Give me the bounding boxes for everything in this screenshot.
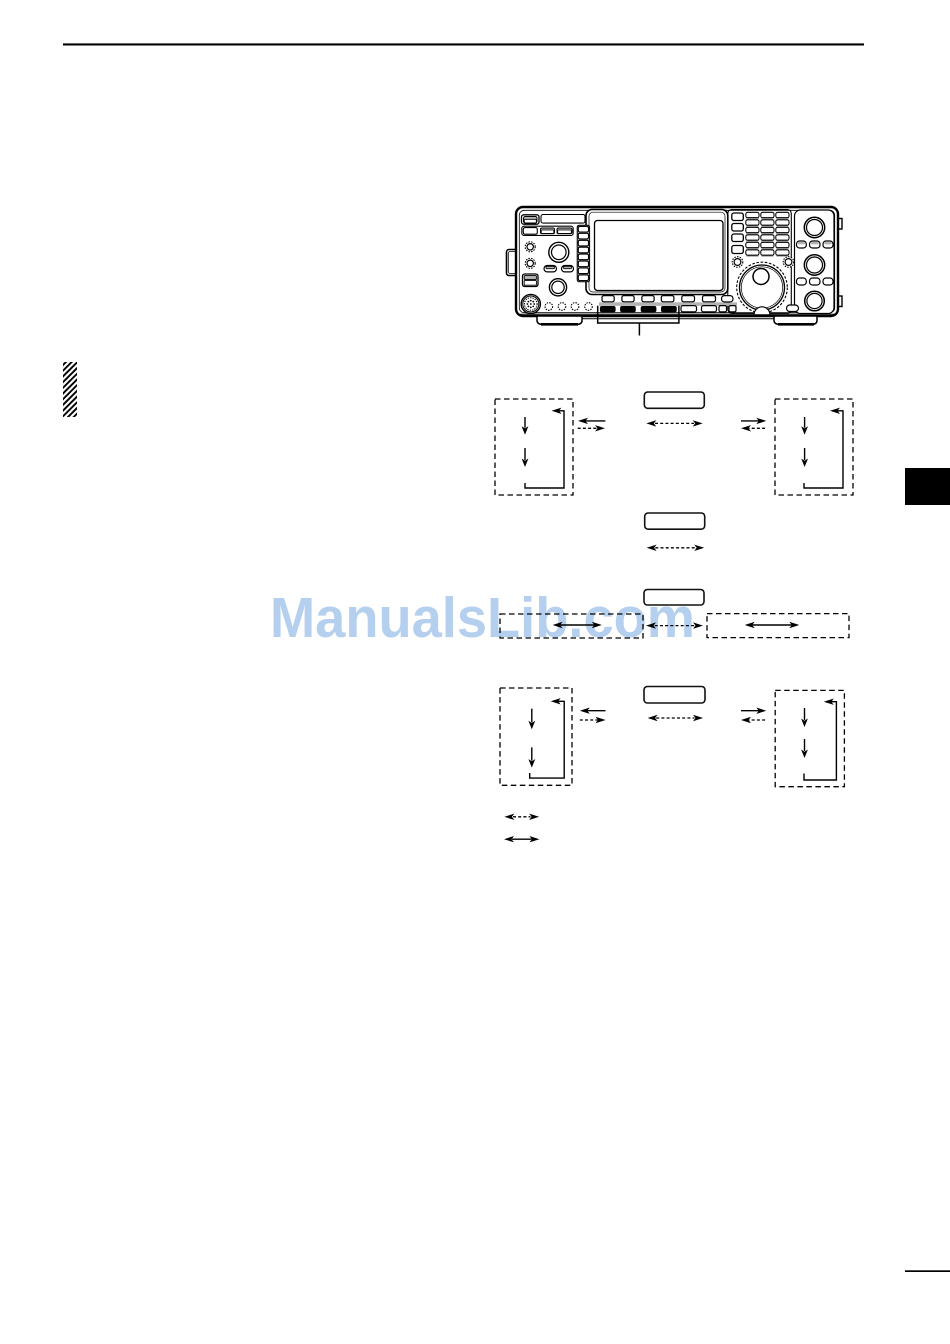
svg-text:ManualsLib.com: ManualsLib.com	[270, 586, 695, 650]
